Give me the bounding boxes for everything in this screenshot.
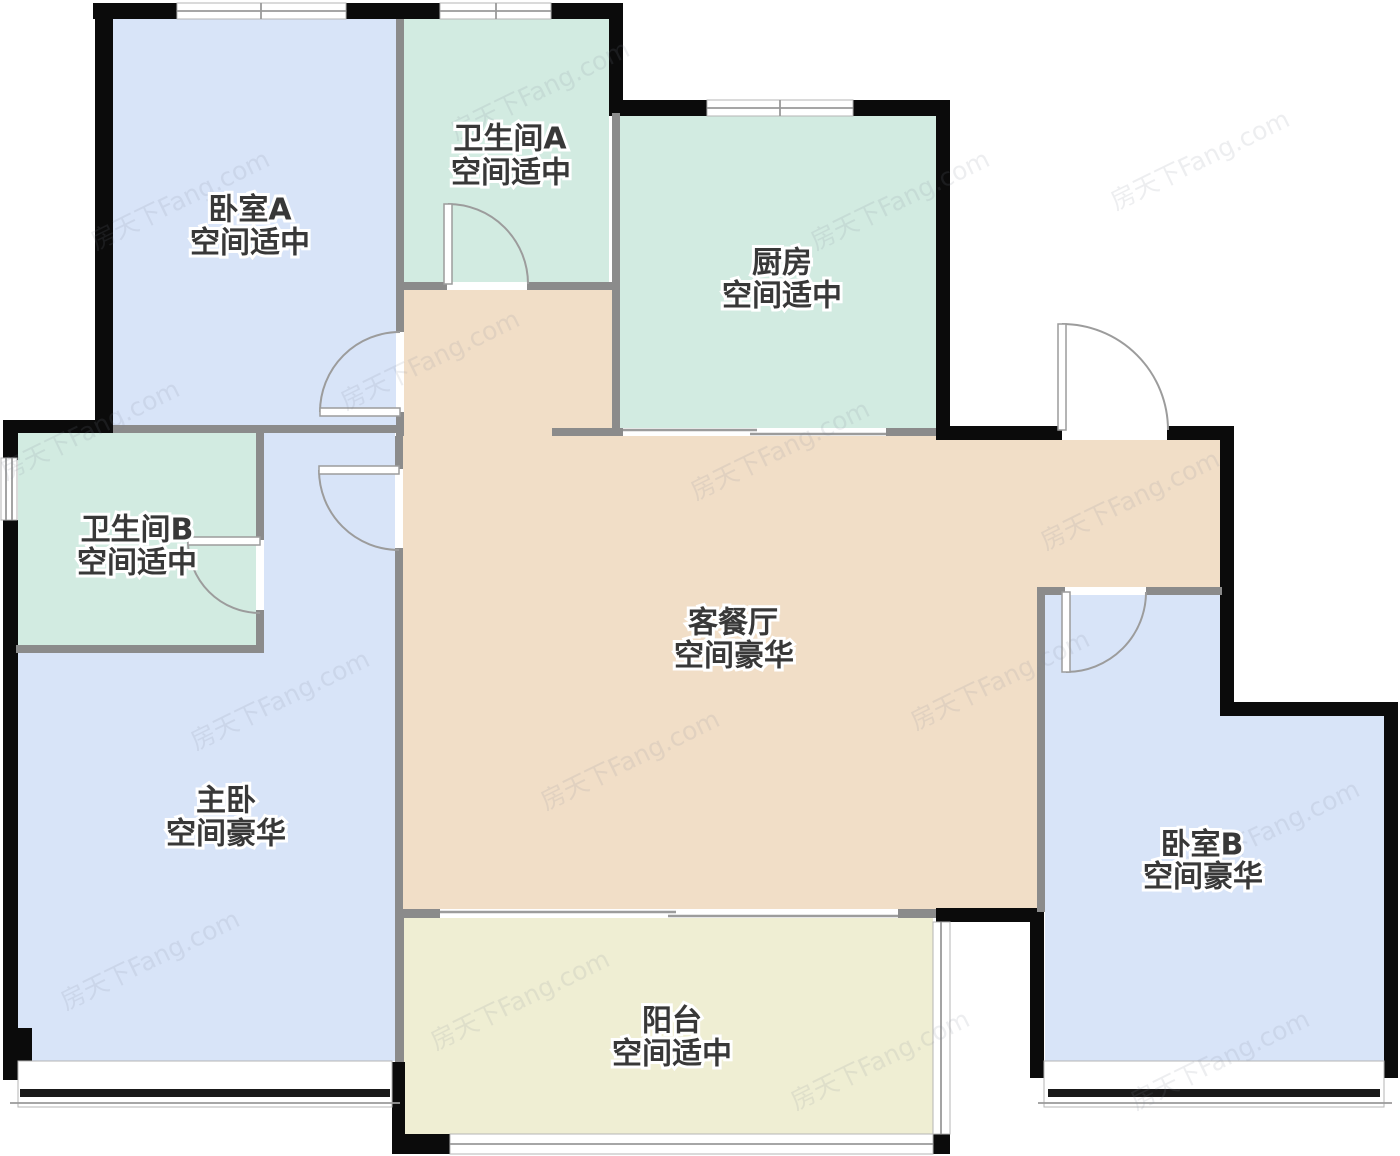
label-living-name: 客餐厅: [688, 606, 778, 641]
label-bathroom-a-status: 空间适中: [451, 156, 571, 191]
label-balcony-status: 空间适中: [612, 1037, 732, 1072]
label-bedroom-a-status: 空间适中: [190, 226, 310, 261]
label-bedroom-b-status: 空间豪华: [1143, 860, 1263, 895]
watermark-text: 房天下Fang.com: [1106, 104, 1294, 216]
door-entry: [1058, 324, 1168, 440]
label-bathroom-a-name: 卫生间A: [453, 122, 567, 157]
label-bathroom-b-status: 空间适中: [77, 546, 197, 581]
label-bedroom-b-name: 卧室B: [1161, 828, 1244, 863]
label-bedroom-a-name: 卧室A: [208, 193, 292, 228]
label-master-status: 空间豪华: [166, 817, 286, 852]
label-kitchen-status: 空间适中: [722, 279, 842, 314]
label-bathroom-b-name: 卫生间B: [81, 513, 194, 548]
floorplan-svg: 房天下Fang.com 房天下Fang.com 房天下Fang.com 房天下F…: [0, 0, 1400, 1156]
label-master-name: 主卧: [196, 784, 256, 819]
label-living-status: 空间豪华: [674, 639, 794, 674]
window-bathroom-a-top: [440, 3, 551, 19]
window-kitchen-top: [707, 100, 853, 116]
label-kitchen-name: 厨房: [752, 246, 812, 281]
window-bedroom-a-top: [177, 3, 346, 19]
bay-window-master-bottom: [10, 1061, 400, 1107]
sliding-door-balcony: [440, 909, 898, 918]
floorplan-canvas: 房天下Fang.com 房天下Fang.com 房天下Fang.com 房天下F…: [0, 0, 1400, 1156]
window-balcony-bottom: [450, 1134, 933, 1154]
label-balcony-name: 阳台: [642, 1004, 702, 1039]
